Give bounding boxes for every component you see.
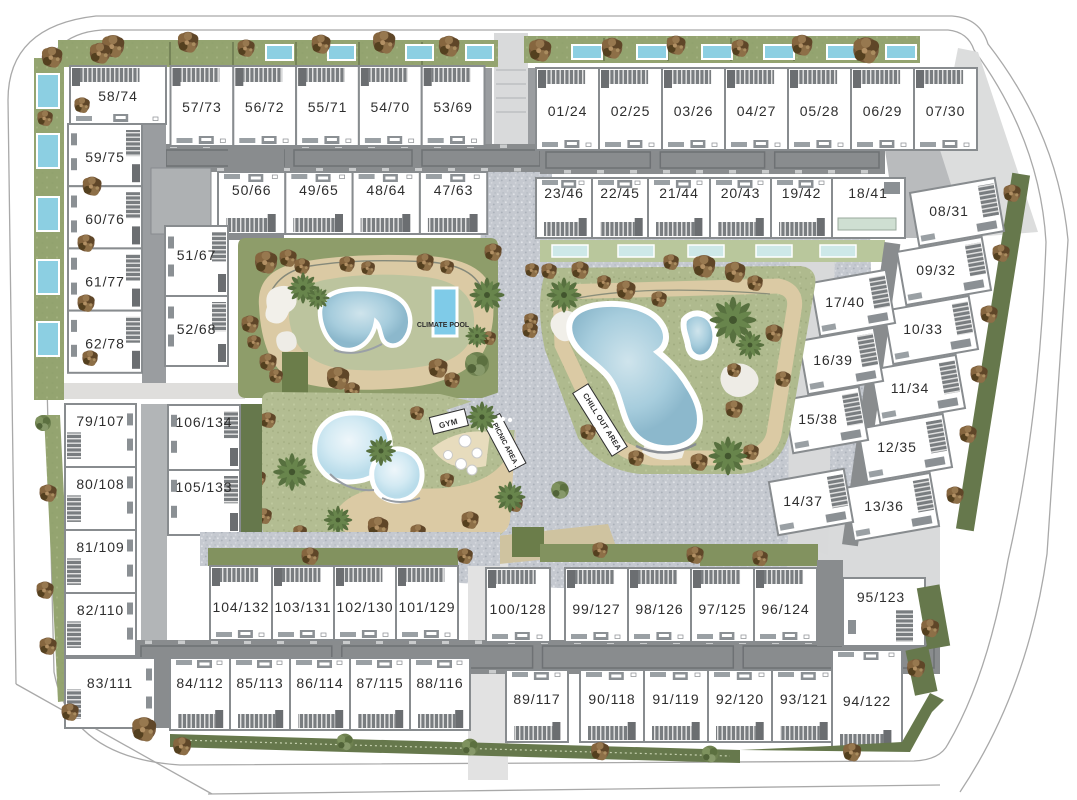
- svg-text:58/74: 58/74: [98, 88, 138, 104]
- svg-text:02/25: 02/25: [611, 103, 651, 119]
- svg-text:22/45: 22/45: [600, 185, 640, 201]
- svg-text:18/41: 18/41: [848, 185, 888, 201]
- svg-text:84/112: 84/112: [176, 675, 223, 691]
- svg-text:05/28: 05/28: [800, 103, 840, 119]
- svg-text:52/68: 52/68: [177, 321, 217, 337]
- svg-text:101/129: 101/129: [399, 599, 456, 615]
- svg-text:16/39: 16/39: [813, 352, 853, 368]
- svg-text:01/24: 01/24: [548, 103, 588, 119]
- svg-text:95/123: 95/123: [857, 589, 905, 605]
- svg-text:97/125: 97/125: [698, 601, 746, 617]
- svg-text:99/127: 99/127: [572, 601, 620, 617]
- svg-text:19/42: 19/42: [782, 185, 822, 201]
- svg-text:09/32: 09/32: [916, 262, 956, 278]
- svg-text:86/114: 86/114: [296, 675, 343, 691]
- svg-text:81/109: 81/109: [76, 539, 124, 555]
- svg-text:104/132: 104/132: [213, 599, 270, 615]
- svg-text:59/75: 59/75: [85, 149, 125, 165]
- svg-text:03/26: 03/26: [674, 103, 714, 119]
- svg-text:79/107: 79/107: [76, 413, 124, 429]
- svg-text:88/116: 88/116: [416, 675, 463, 691]
- svg-text:56/72: 56/72: [245, 99, 285, 115]
- svg-text:85/113: 85/113: [236, 675, 283, 691]
- svg-text:53/69: 53/69: [433, 99, 473, 115]
- svg-text:49/65: 49/65: [299, 182, 339, 198]
- svg-text:04/27: 04/27: [737, 103, 777, 119]
- svg-text:06/29: 06/29: [863, 103, 903, 119]
- svg-text:13/36: 13/36: [864, 498, 904, 514]
- svg-text:92/120: 92/120: [716, 691, 764, 707]
- svg-text:61/77: 61/77: [85, 273, 125, 289]
- svg-text:62/78: 62/78: [85, 336, 125, 352]
- svg-text:96/124: 96/124: [761, 601, 809, 617]
- svg-text:12/35: 12/35: [877, 439, 917, 455]
- svg-text:55/71: 55/71: [308, 99, 348, 115]
- svg-text:80/108: 80/108: [76, 476, 124, 492]
- svg-text:60/76: 60/76: [85, 211, 125, 227]
- svg-text:15/38: 15/38: [798, 411, 838, 427]
- svg-text:08/31: 08/31: [929, 203, 969, 219]
- svg-text:10/33: 10/33: [903, 321, 943, 337]
- svg-text:103/131: 103/131: [275, 599, 332, 615]
- svg-text:21/44: 21/44: [659, 185, 699, 201]
- svg-text:91/119: 91/119: [652, 691, 699, 707]
- svg-text:57/73: 57/73: [182, 99, 222, 115]
- svg-text:11/34: 11/34: [891, 380, 930, 396]
- svg-text:106/134: 106/134: [176, 414, 233, 430]
- svg-text:102/130: 102/130: [337, 599, 394, 615]
- svg-text:94/122: 94/122: [843, 693, 891, 709]
- svg-text:105/133: 105/133: [176, 479, 233, 495]
- svg-text:87/115: 87/115: [356, 675, 403, 691]
- svg-text:47/63: 47/63: [434, 182, 474, 198]
- svg-text:17/40: 17/40: [825, 294, 865, 310]
- svg-text:98/126: 98/126: [635, 601, 683, 617]
- svg-text:50/66: 50/66: [232, 182, 272, 198]
- svg-text:83/111: 83/111: [87, 675, 133, 691]
- svg-text:100/128: 100/128: [490, 601, 547, 617]
- svg-text:89/117: 89/117: [513, 691, 560, 707]
- svg-text:23/46: 23/46: [544, 185, 584, 201]
- svg-text:82/110: 82/110: [77, 602, 124, 618]
- svg-text:48/64: 48/64: [366, 182, 406, 198]
- svg-text:51/67: 51/67: [177, 247, 217, 263]
- svg-text:07/30: 07/30: [926, 103, 966, 119]
- svg-text:20/43: 20/43: [721, 185, 761, 201]
- svg-text:54/70: 54/70: [371, 99, 411, 115]
- svg-text:14/37: 14/37: [783, 493, 823, 509]
- svg-text:CLIMATE POOL: CLIMATE POOL: [417, 322, 470, 329]
- svg-text:90/118: 90/118: [588, 691, 635, 707]
- svg-text:93/121: 93/121: [780, 691, 828, 707]
